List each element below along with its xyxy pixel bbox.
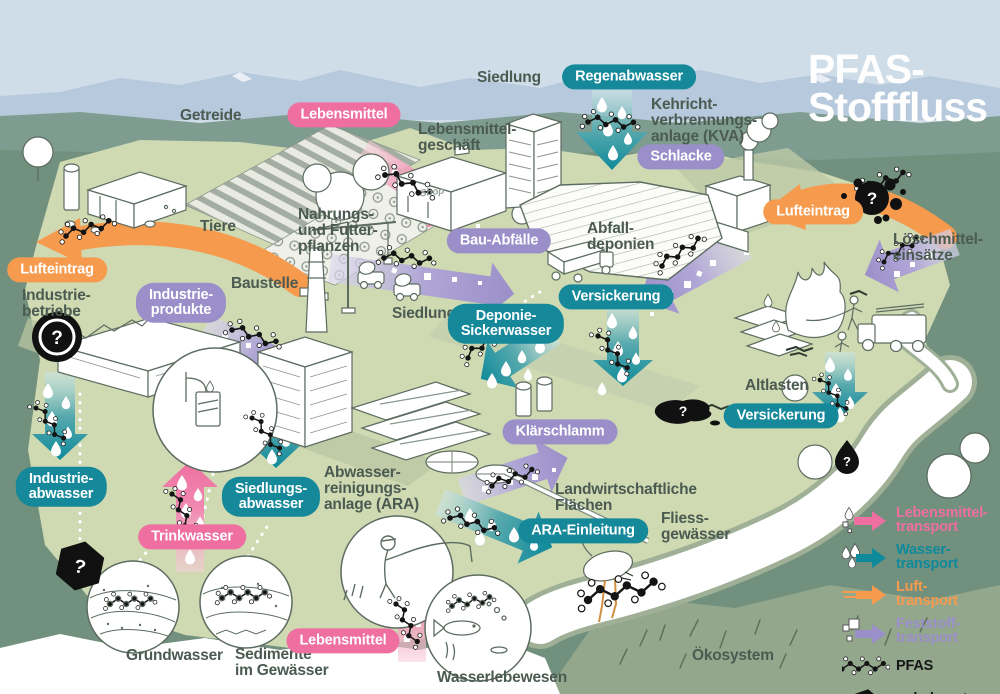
legend-label-food-transport: Lebensmittel- transport [896, 507, 988, 535]
groundwater-inset [87, 561, 179, 653]
question-mark: ? [51, 328, 63, 349]
legend-row-solid-transport: Feststoff- transport [842, 617, 1000, 647]
label-altlasten: Altlasten [745, 378, 809, 394]
label-getreide: Getreide [180, 108, 241, 124]
label-tiere: Tiere [200, 219, 236, 235]
pill-industrieprodukte: Industrie- produkte [136, 283, 226, 323]
legend-label-air-transport: Luft- transport [896, 581, 958, 609]
pill-trinkwasser: Trinkwasser [138, 524, 246, 549]
label-siedlung-top: Siedlung [477, 70, 541, 86]
pill-lufteintrag-right: Lufteintrag [763, 199, 863, 224]
aquatic-life-inset [425, 575, 531, 681]
label-baustelle: Baustelle [231, 276, 298, 292]
pfas-molecule-icon [842, 654, 890, 680]
pfas-stofffluss-infographic: ? ? ? ? ? PFAS- Stofffluss Getreide Sied… [0, 0, 1000, 694]
pill-lebensmittel-top: Lebensmittel [287, 102, 400, 127]
pill-deponie-sickerwasser: Deponie- Sickerwasser [448, 304, 564, 344]
pill-lebensmittel-bottom: Lebensmittel [286, 628, 399, 653]
label-landwirtschaftliche-flaechen: Landwirtschaftliche Flächen [555, 482, 697, 514]
water-transport-arrow-icon [842, 543, 890, 573]
legend-row-water-transport: Wasser- transport [842, 543, 1000, 573]
pill-industrieabwasser: Industrie- abwasser [16, 467, 107, 507]
pill-regenabwasser: Regenabwasser [562, 64, 696, 89]
question-mark: ? [867, 189, 877, 208]
pill-ara-einleitung: ARA-Einleitung [518, 518, 648, 543]
legend-row-unknown-sources: ? unbekannte Quellen [842, 687, 1000, 694]
label-ara: Abwasser- reinigungs- anlage (ARA) [324, 465, 419, 512]
legend-label-pfas: PFAS [896, 660, 933, 674]
unknown-sources-hexagon-icon: ? [842, 687, 890, 694]
sediment-inset [200, 556, 292, 648]
legend-label-water-transport: Wasser- transport [896, 544, 958, 572]
pill-lufteintrag-left: Lufteintrag [7, 257, 107, 282]
legend-label-solid-transport: Feststoff- transport [896, 618, 960, 646]
label-grundwasser: Grundwasser [126, 648, 223, 664]
solid-transport-arrow-icon [842, 617, 890, 647]
label-kva: Kehricht- verbrennungs- anlage (KVA) [651, 97, 757, 144]
question-mark: ? [843, 454, 851, 469]
label-oekosystem: Ökosystem [692, 648, 774, 664]
legend: Lebensmittel- transport Wasser- transpor… [842, 506, 1000, 694]
pill-siedlungsabwasser: Siedlungs- abwasser [222, 477, 320, 517]
label-lebensmittelgeschaeft: Lebensmittel- geschäft [418, 122, 516, 154]
legend-row-pfas: PFAS [842, 654, 1000, 680]
label-siedlung-mitte: Siedlung [392, 306, 456, 322]
page-title: PFAS- Stofffluss [808, 50, 987, 126]
label-fliessgewaesser: Fliess- gewässer [661, 511, 730, 543]
pill-schlacke: Schlacke [637, 144, 724, 169]
pill-klaerschlamm: Klärschlamm [503, 419, 618, 444]
label-abfalldeponien: Abfall- deponien [587, 221, 654, 253]
legend-row-air-transport: Luft- transport [842, 580, 1000, 610]
pill-bauabfaelle: Bau-Abfälle [447, 228, 551, 253]
food-transport-arrow-icon [842, 506, 890, 536]
label-industriebetriebe: Industrie- betriebe [22, 288, 91, 320]
pill-versickerung-mid: Versickerung [559, 284, 674, 309]
label-nahrungs-futterpflanzen: Nahrungs- und Futter- pflanzen [298, 207, 378, 254]
question-mark: ? [679, 403, 688, 419]
legend-row-food-transport: Lebensmittel- transport [842, 506, 1000, 536]
label-wasserlebewesen: Wasserlebewesen [437, 670, 567, 686]
pill-versickerung-right: Versickerung [724, 403, 839, 428]
label-loeschmitteleinsaetze: Löschmittel- einsätze [893, 232, 983, 264]
air-transport-arrow-icon [842, 580, 890, 610]
drinking-water-inset [153, 348, 277, 472]
